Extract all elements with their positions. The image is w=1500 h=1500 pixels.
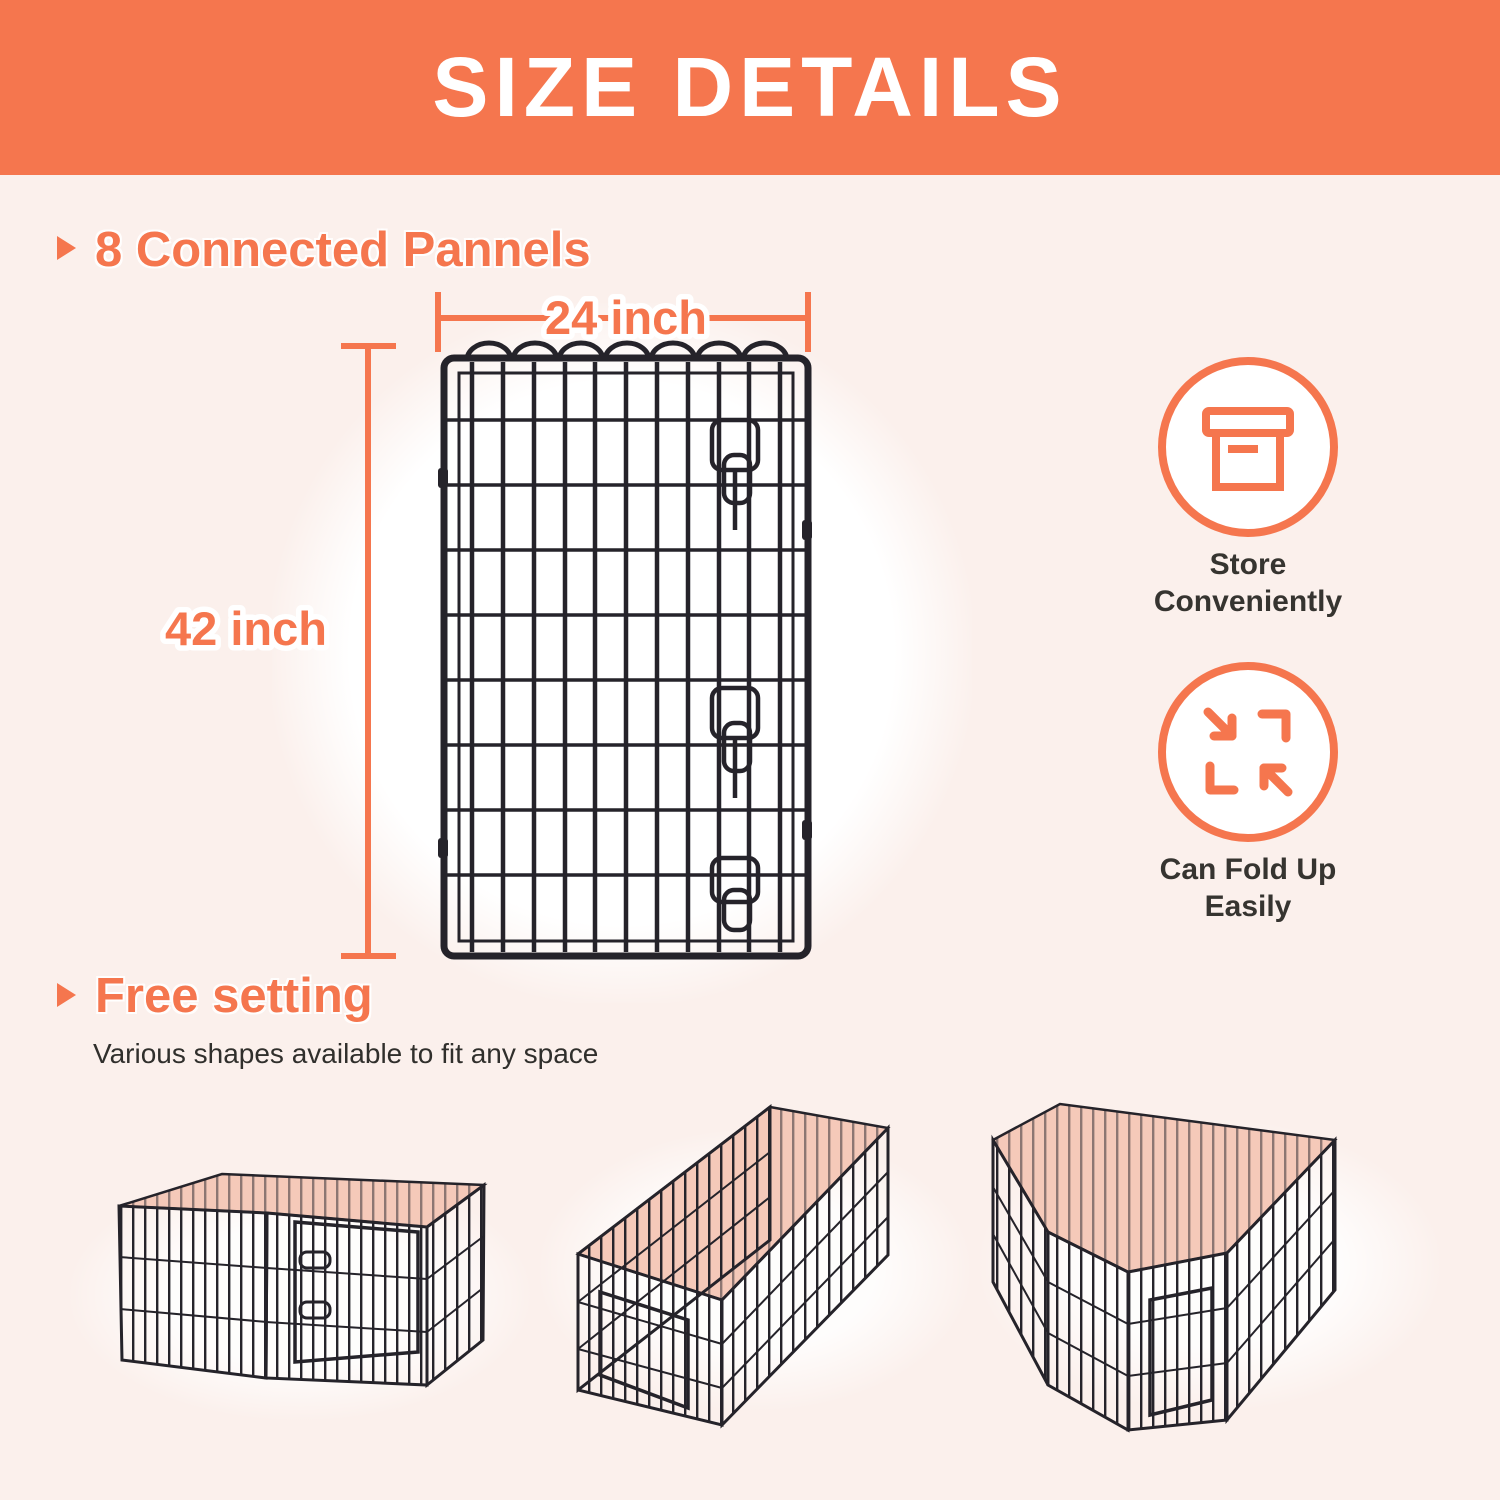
width-dimension-label: 24 inch xyxy=(545,291,707,344)
feature-label-fold: Can Fold Up Easily xyxy=(1138,851,1358,925)
size-details-infographic: SIZE DETAILS 8 Connected Pannels xyxy=(0,0,1500,1500)
banner: SIZE DETAILS xyxy=(0,0,1500,175)
bullet-triangle-icon xyxy=(57,236,76,260)
long-rectangle-pen-illustration xyxy=(560,1090,1000,1440)
free-setting-subtext: Various shapes available to fit any spac… xyxy=(93,1038,598,1070)
banner-title: SIZE DETAILS xyxy=(432,39,1067,136)
fold-arrows-icon xyxy=(1153,657,1343,847)
panels-section-heading: 8 Connected Pannels xyxy=(95,222,591,278)
feature-label-store: Store Conveniently xyxy=(1138,546,1358,620)
bullet-triangle-icon xyxy=(57,983,76,1007)
free-setting-heading: Free setting xyxy=(95,968,373,1024)
panel-dimension-diagram: 24 inch 42 inch xyxy=(130,280,840,980)
wire-panel-illustration xyxy=(438,343,812,956)
height-dimension-label: 42 inch xyxy=(165,602,327,655)
l-shape-pen-illustration xyxy=(980,1090,1440,1450)
square-pen-illustration xyxy=(70,1150,510,1450)
storage-box-icon xyxy=(1153,352,1343,542)
